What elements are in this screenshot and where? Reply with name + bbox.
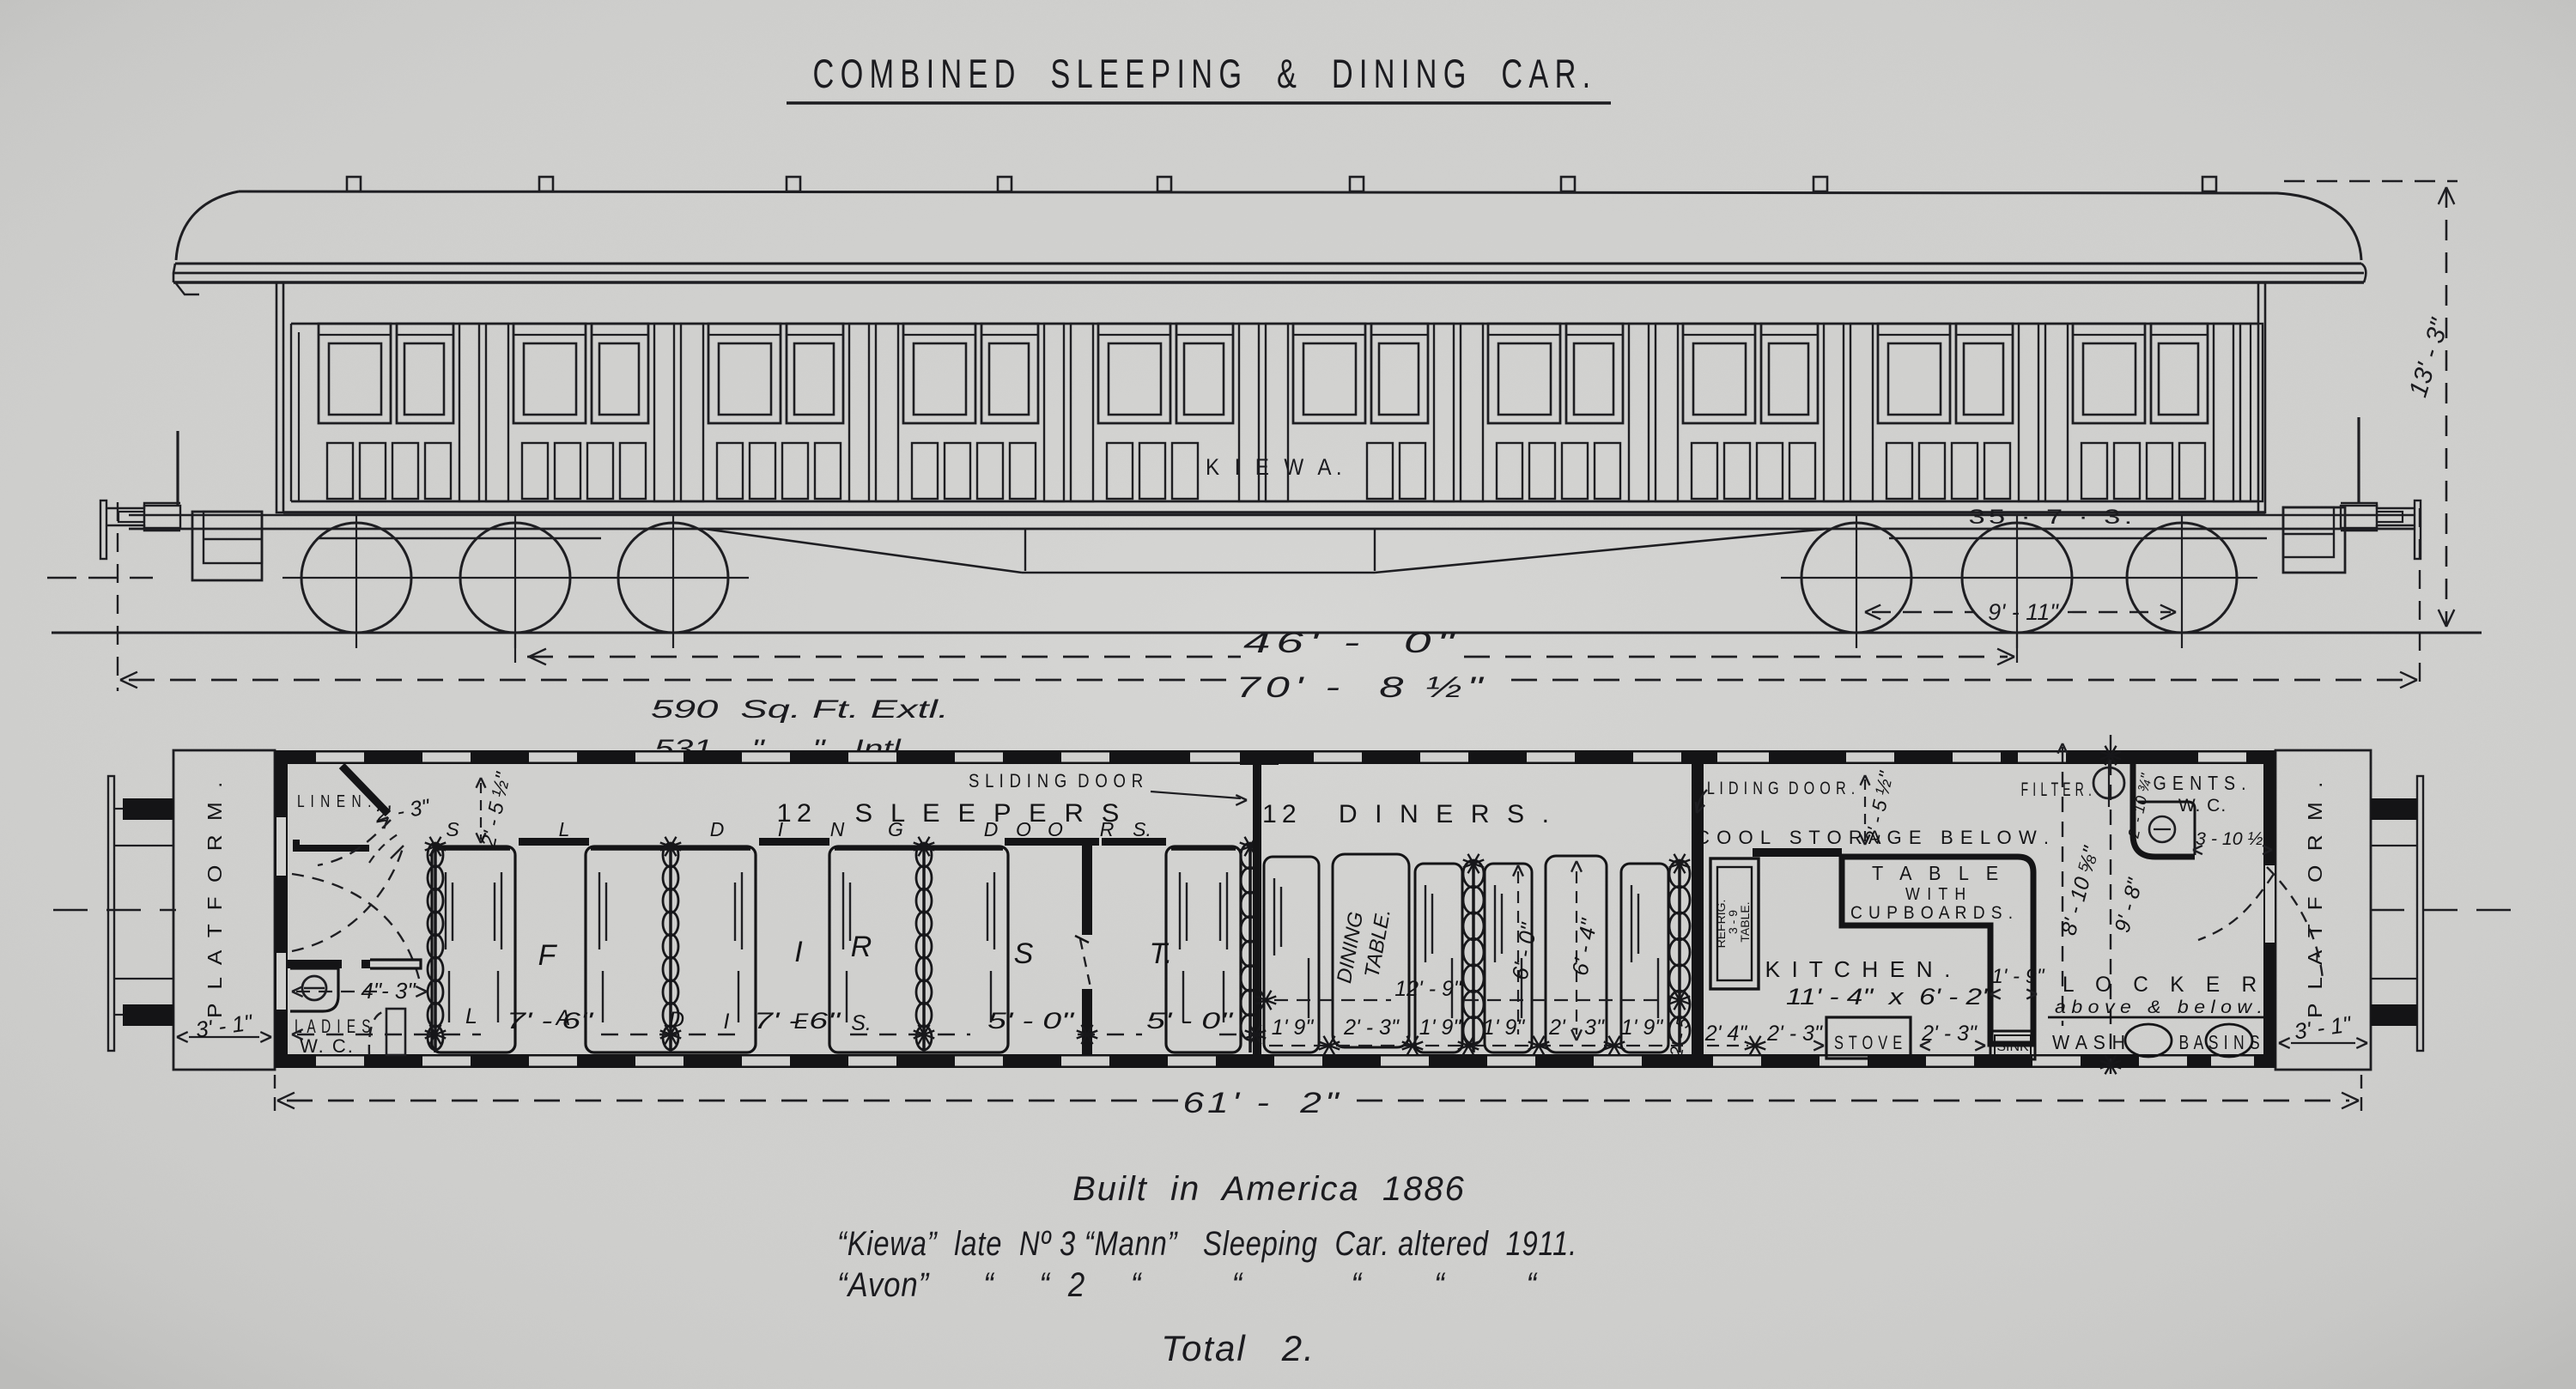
svg-text:W. C.: W. C. xyxy=(300,1035,355,1057)
svg-text:I: I xyxy=(778,818,784,840)
svg-text:1' 9": 1' 9" xyxy=(1419,1016,1462,1040)
svg-text:S L I D I N G D O O R .: S L I D I N G D O O R . xyxy=(1692,779,1856,798)
svg-text:S: S xyxy=(446,818,459,840)
svg-text:G: G xyxy=(888,818,903,840)
svg-text:D: D xyxy=(669,1008,684,1032)
svg-text:W. C.: W. C. xyxy=(2178,796,2227,816)
svg-text:D: D xyxy=(710,818,725,840)
svg-text:70' - 8 ½": 70' - 8 ½" xyxy=(1236,671,1488,704)
svg-text:7' - 6": 7' - 6" xyxy=(754,1008,841,1034)
svg-text:P L A T F O R M .: P L A T F O R M . xyxy=(204,778,226,1018)
svg-text:F I L T E R .: F I L T E R . xyxy=(2021,779,2093,800)
svg-text:O: O xyxy=(1016,818,1031,840)
svg-text:TABLE.: TABLE. xyxy=(1738,901,1752,942)
svg-text:590 Sq. Ft. Extl.: 590 Sq. Ft. Extl. xyxy=(651,695,949,724)
svg-text:S.: S. xyxy=(1133,818,1151,840)
svg-text:1' 9": 1' 9" xyxy=(1272,1016,1315,1040)
svg-text:K I T C H E N .: K I T C H E N . xyxy=(1765,956,1953,982)
svg-text:P L A T F O R M .: P L A T F O R M . xyxy=(2304,778,2326,1018)
svg-text:COMBINED SLEEPING & DINING: COMBINED SLEEPING & DINING CAR. xyxy=(813,51,1597,96)
svg-text:1' 9": 1' 9" xyxy=(1621,1016,1664,1040)
svg-text:1' - 9": 1' - 9" xyxy=(1991,965,2045,988)
svg-text:L: L xyxy=(465,1004,477,1028)
svg-text:T.: T. xyxy=(1149,937,1172,970)
svg-text:L: L xyxy=(559,818,570,840)
svg-text:a b o v e & b e l o w .: a b o v e & b e l o w . xyxy=(2055,998,2263,1017)
svg-text:2' - 3": 2' - 3" xyxy=(1548,1016,1605,1040)
svg-text:R: R xyxy=(1100,818,1115,840)
svg-text:4"- 3": 4"- 3" xyxy=(361,978,416,1004)
svg-text:Total 2.: Total 2. xyxy=(1161,1328,1315,1368)
svg-text:O: O xyxy=(1048,818,1063,840)
svg-text:2' - 3": 2' - 3" xyxy=(1343,1016,1400,1040)
svg-text:Built in America 1886: Built in America 1886 xyxy=(1072,1170,1466,1208)
svg-text:5' - 0": 5' - 0" xyxy=(1146,1008,1234,1034)
svg-text:N: N xyxy=(830,818,845,840)
svg-text:“Kiewa” late Nº 3 “Mann” S: “Kiewa” late Nº 3 “Mann” Sleeping Car. a… xyxy=(837,1225,1577,1263)
svg-text:12' - 9": 12' - 9" xyxy=(1394,977,1462,1001)
svg-text:12 S L E E P E R S: 12 S L E E P E R S xyxy=(777,799,1125,828)
svg-text:I: I xyxy=(724,1010,730,1034)
svg-text:61' - 2": 61' - 2" xyxy=(1183,1087,1342,1119)
svg-text:I: I xyxy=(794,936,803,968)
svg-text:S T O V E: S T O V E xyxy=(1834,1032,1903,1053)
svg-text:2' 4": 2' 4" xyxy=(1704,1022,1748,1046)
svg-text:F: F xyxy=(538,939,558,972)
svg-text:D: D xyxy=(984,818,999,840)
svg-text:5' - 0": 5' - 0" xyxy=(987,1008,1075,1034)
svg-text:C U P B O A R D S .: C U P B O A R D S . xyxy=(1850,903,2014,923)
svg-text:S.: S. xyxy=(851,1011,872,1035)
svg-text:G E N T S .: G E N T S . xyxy=(2154,772,2247,794)
svg-text:K I E W A.: K I E W A. xyxy=(1206,454,1346,480)
svg-text:46' - 0": 46' - 0" xyxy=(1243,627,1460,659)
svg-text:W I T H: W I T H xyxy=(1905,885,1967,904)
svg-text:“Avon” “ “ 2 “: “Avon” “ “ 2 “ “ “ “ “ xyxy=(837,1266,1538,1304)
svg-text:7' - 6": 7' - 6" xyxy=(507,1008,594,1034)
svg-text:L I N E N .: L I N E N . xyxy=(297,792,373,811)
svg-text:S: S xyxy=(1014,937,1034,970)
svg-text:35 · 7 · 3.: 35 · 7 · 3. xyxy=(1969,506,2136,529)
svg-text:SINK: SINK xyxy=(1996,1040,2029,1054)
svg-text:R: R xyxy=(851,931,872,963)
svg-text:12 D I N E R S .: 12 D I N E R S . xyxy=(1262,800,1554,828)
svg-text:1' 9": 1' 9" xyxy=(1483,1016,1526,1040)
svg-text:W A S H: W A S H xyxy=(2052,1031,2126,1053)
svg-text:3 - 10 ½": 3 - 10 ½" xyxy=(2196,829,2271,849)
svg-text:T A B L E: T A B L E xyxy=(1872,862,2001,884)
svg-text:S L I D I N G D O O R: S L I D I N G D O O R xyxy=(969,770,1144,792)
svg-text:L O C K E R: L O C K E R xyxy=(2063,973,2260,997)
svg-text:11' - 4" x 6' - 2": 11' - 4" x 6' - 2" xyxy=(1786,984,1994,1010)
svg-text:9' - 11": 9' - 11" xyxy=(1988,599,2059,625)
